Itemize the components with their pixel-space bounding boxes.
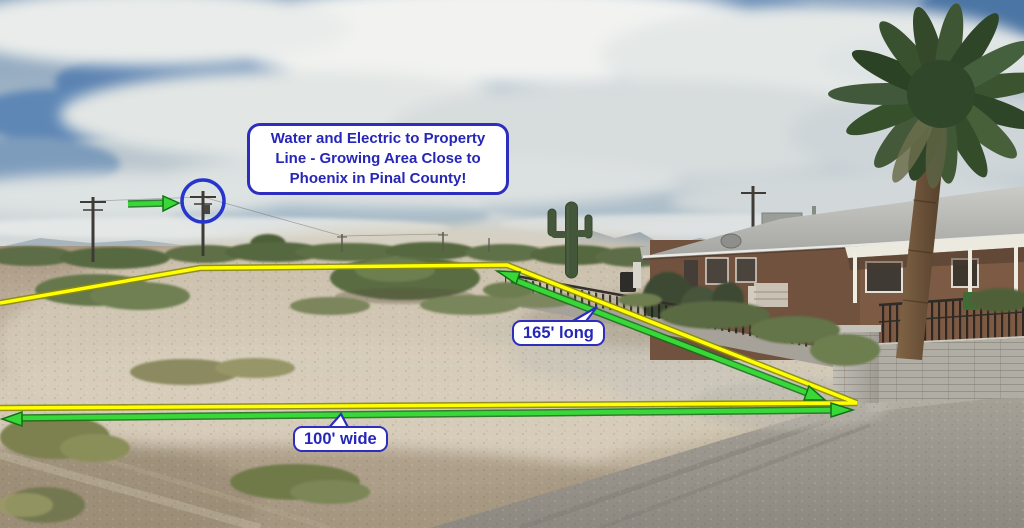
- label-width: 100' wide: [293, 426, 388, 452]
- callout-line-3: Phoenix in Pinal County!: [252, 169, 504, 189]
- callout-line-1: Water and Electric to Property: [252, 129, 504, 149]
- scene-canvas: [0, 0, 1024, 528]
- porch-post-1: [853, 253, 857, 303]
- callout-line-2: Line - Growing Area Close to: [252, 149, 504, 169]
- property-photo: Water and Electric to Property Line - Gr…: [0, 0, 1024, 528]
- label-length: 165' long: [512, 320, 605, 346]
- house-window-2: [736, 258, 756, 282]
- house-window-1: [706, 258, 728, 284]
- front-steps: [754, 283, 788, 307]
- callout-water-electric: Water and Electric to Property Line - Gr…: [247, 123, 509, 195]
- satellite-dish-icon: [721, 234, 741, 248]
- white-gate-post: [633, 262, 641, 288]
